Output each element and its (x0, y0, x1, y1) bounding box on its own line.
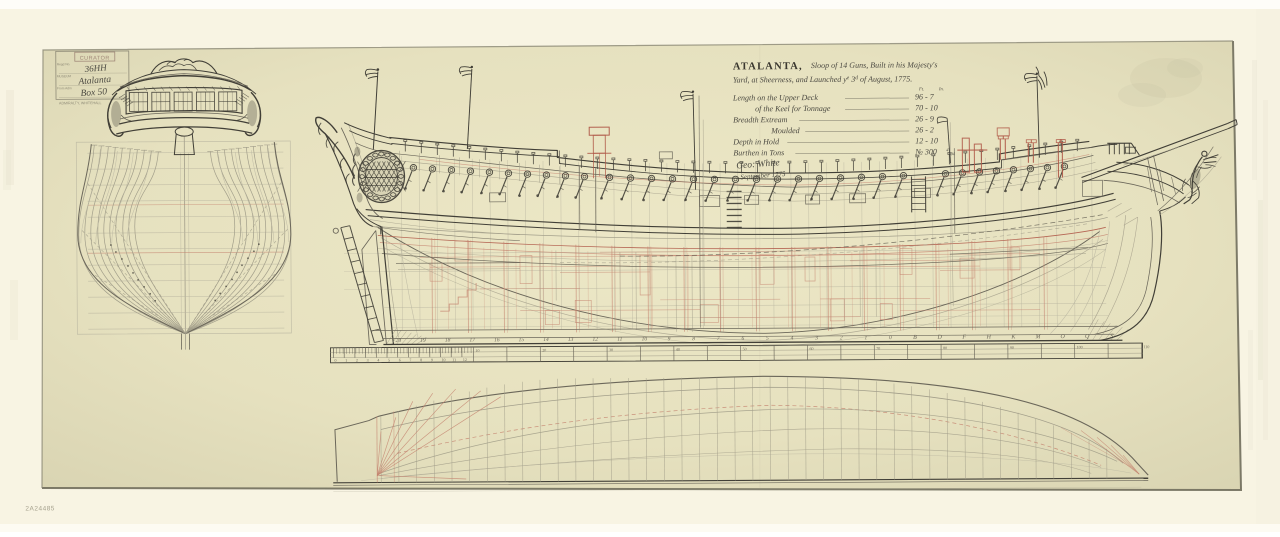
svg-text:94: 94 (950, 151, 955, 156)
svg-text:Yard, at Sheerness, and Lau: Yard, at Sheerness, and Launched ye 3d o… (733, 74, 912, 84)
svg-text:of the Keel for Tonnage: of the Keel for Tonnage (755, 104, 831, 113)
svg-text:Moulded: Moulded (770, 126, 800, 135)
svg-text:2A24485: 2A24485 (25, 505, 55, 512)
svg-text:6: 6 (741, 336, 744, 342)
svg-text:D: D (936, 335, 942, 341)
svg-text:70: 70 (876, 346, 880, 351)
svg-text:10: 10 (475, 348, 479, 353)
svg-text:13: 13 (568, 337, 574, 343)
svg-text:O: O (1060, 334, 1065, 340)
svg-text:10: 10 (442, 357, 446, 362)
svg-text:40: 40 (676, 347, 680, 352)
svg-text:Box 50: Box 50 (80, 87, 108, 99)
svg-text:MUSEUM: MUSEUM (57, 74, 72, 78)
svg-text:M: M (1034, 334, 1041, 340)
svg-text:11: 11 (617, 337, 622, 343)
svg-text:ADMIRALTY, WHITEHALL: ADMIRALTY, WHITEHALL (59, 101, 101, 105)
svg-text:5: 5 (766, 336, 769, 342)
svg-text:10: 10 (642, 336, 648, 342)
svg-text:Depth in Hold: Depth in Hold (732, 137, 780, 146)
svg-text:3: 3 (814, 335, 818, 341)
svg-text:90: 90 (1010, 345, 1014, 350)
svg-text:96 - 7: 96 - 7 (915, 92, 935, 101)
svg-text:8: 8 (420, 357, 422, 362)
svg-text:30: 30 (609, 347, 613, 352)
svg-text:Ft.: Ft. (918, 86, 924, 91)
svg-text:F: F (961, 335, 966, 341)
svg-text:H: H (986, 334, 992, 340)
svg-text:1: 1 (864, 335, 867, 341)
svg-text:70 - 10: 70 - 10 (915, 103, 938, 112)
svg-text:7: 7 (717, 336, 720, 342)
svg-text:Q: Q (1085, 334, 1090, 340)
svg-text:4: 4 (791, 335, 794, 342)
svg-text:0: 0 (889, 335, 892, 341)
svg-text:Sloop of 14 Guns, Built in his: Sloop of 14 Guns, Built in his Majesty's (811, 60, 938, 70)
svg-text:4: 4 (377, 358, 379, 363)
svg-text:3: 3 (367, 358, 369, 363)
svg-text:7: 7 (409, 357, 411, 362)
svg-text:17: 17 (469, 337, 475, 343)
svg-text:5: 5 (388, 357, 390, 362)
svg-text:0: 0 (335, 358, 337, 363)
svg-text:From Adm: From Adm (57, 86, 72, 90)
svg-text:14: 14 (543, 336, 549, 343)
svg-text:6: 6 (399, 357, 401, 362)
svg-text:15: 15 (519, 337, 525, 343)
svg-text:Regd No.: Regd No. (57, 62, 71, 66)
svg-text:19: 19 (420, 338, 426, 344)
svg-text:12: 12 (592, 337, 598, 343)
svg-text:26 - 2: 26 - 2 (915, 125, 934, 134)
svg-text:26 - 9: 26 - 9 (915, 114, 934, 123)
svg-text:Burthen in Tons: Burthen in Tons (733, 148, 784, 157)
svg-text:36HH: 36HH (83, 62, 107, 74)
svg-text:12 - 10: 12 - 10 (915, 136, 938, 145)
svg-text:Length on the Upper Deck: Length on the Upper Deck (732, 93, 818, 102)
svg-text:1: 1 (345, 358, 347, 363)
svg-text:100: 100 (1077, 344, 1083, 349)
svg-text:B: B (913, 335, 917, 341)
svg-text:ATALANTA,: ATALANTA, (733, 61, 803, 72)
svg-text:16: 16 (494, 337, 500, 343)
svg-text:In.: In. (938, 86, 944, 91)
svg-text:80: 80 (943, 345, 947, 350)
svg-text:50: 50 (743, 346, 747, 351)
svg-text:12: 12 (463, 357, 467, 362)
svg-text:2: 2 (356, 358, 358, 363)
svg-text:20: 20 (542, 348, 546, 353)
svg-text:18: 18 (445, 338, 451, 344)
svg-text:9: 9 (431, 357, 433, 362)
svg-text:20: 20 (396, 338, 402, 344)
svg-text:110: 110 (1143, 344, 1149, 349)
svg-text:2: 2 (840, 335, 843, 341)
svg-text:Breadth Extream: Breadth Extream (733, 115, 788, 124)
svg-text:8: 8 (692, 336, 695, 342)
svg-text:9: 9 (668, 336, 671, 342)
svg-text:№ 300: № 300 (914, 147, 937, 156)
svg-text:60: 60 (809, 346, 813, 351)
svg-text:11: 11 (452, 357, 456, 362)
svg-text:CURATOR: CURATOR (80, 56, 110, 62)
